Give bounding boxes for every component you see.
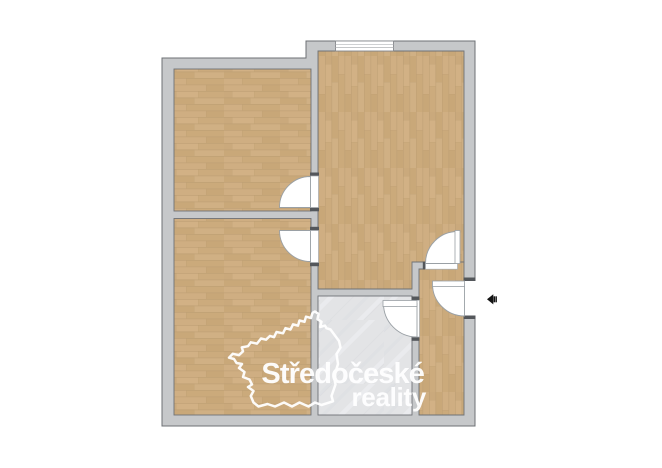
svg-text:reality: reality <box>351 382 426 412</box>
